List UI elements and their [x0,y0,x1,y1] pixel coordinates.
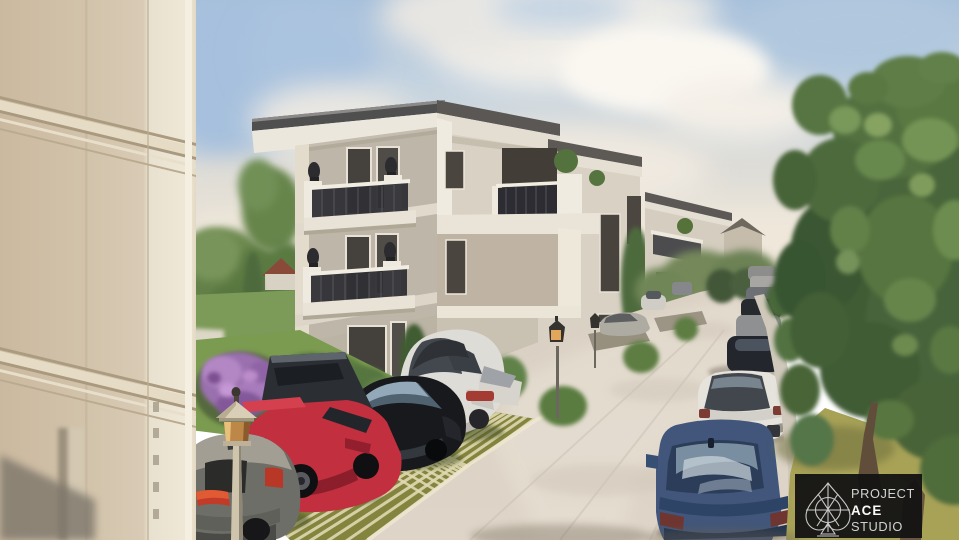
svg-text:ACE: ACE [851,503,882,518]
svg-text:STUDIO: STUDIO [851,519,903,534]
svg-text:PROJECT: PROJECT [851,486,915,501]
